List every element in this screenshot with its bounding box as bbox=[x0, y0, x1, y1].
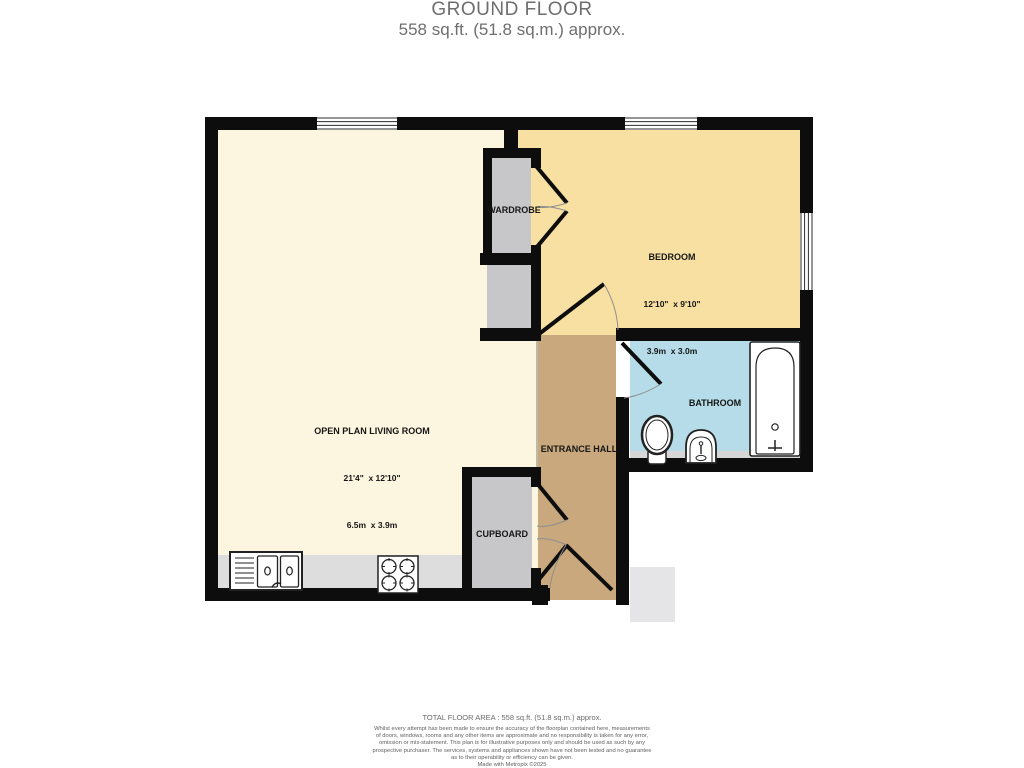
total-floor-area: TOTAL FLOOR AREA : 558 sq.ft. (51.8 sq.m… bbox=[0, 713, 1024, 722]
living-room-name: OPEN PLAN LIVING ROOM bbox=[314, 426, 430, 437]
window-top-left bbox=[317, 117, 397, 130]
wall-storage-bottom bbox=[480, 328, 541, 341]
living-hall-boundary-line bbox=[536, 341, 538, 467]
metropix-credit: Made with Metropix ©2025 bbox=[0, 762, 1024, 768]
bedroom-dims-imperial: 12'10" x 9'10" bbox=[643, 299, 700, 310]
bedroom-dims-metric: 3.9m x 3.0m bbox=[643, 346, 700, 357]
floorplan-page: GROUND FLOOR 558 sq.ft. (51.8 sq.m.) app… bbox=[0, 0, 1024, 768]
entrance-hall-label: ENTRANCE HALL bbox=[541, 444, 618, 455]
living-room-label: OPEN PLAN LIVING ROOM 21'4" x 12'10" 6.5… bbox=[314, 390, 430, 566]
disclaimer: Whilst every attempt has been made to en… bbox=[0, 726, 1024, 768]
bedroom-label: BEDROOM 12'10" x 9'10" 3.9m x 3.0m bbox=[643, 216, 700, 392]
wall-wardrobe-stub-top bbox=[531, 148, 541, 168]
bathtub bbox=[750, 342, 800, 456]
kitchen-sink bbox=[230, 552, 302, 590]
floorplan-drawing bbox=[0, 0, 1024, 768]
wardrobe-label: WARDROBE bbox=[487, 205, 541, 216]
living-room-dims-metric: 6.5m x 3.9m bbox=[314, 520, 430, 531]
storage-recess-floor bbox=[487, 265, 531, 328]
window-bedroom-right bbox=[800, 213, 813, 290]
cupboard-label: CUPBOARD bbox=[476, 529, 528, 540]
outside-step bbox=[630, 567, 675, 622]
wall-left bbox=[205, 117, 218, 601]
disclaimer-line: prospective purchaser. The services, sys… bbox=[0, 748, 1024, 755]
bedroom-name: BEDROOM bbox=[643, 252, 700, 263]
disclaimer-line: as to their operability or efficiency ca… bbox=[0, 755, 1024, 762]
floors bbox=[218, 130, 803, 622]
wall-cupboard-left bbox=[462, 467, 472, 598]
wall-right bbox=[800, 117, 813, 472]
wall-hall-right bbox=[616, 397, 629, 605]
wall-storage-right bbox=[531, 253, 541, 341]
entrance-hall-floor bbox=[538, 335, 616, 600]
disclaimer-line: Whilst every attempt has been made to en… bbox=[0, 726, 1024, 733]
disclaimer-line: omission or mis-statement. This plan is … bbox=[0, 740, 1024, 747]
washbasin bbox=[686, 430, 716, 463]
disclaimer-line: of doors, windows, rooms and any other i… bbox=[0, 733, 1024, 740]
wall-cupboard-top bbox=[462, 467, 541, 477]
window-top-right bbox=[625, 117, 697, 130]
living-room-dims-imperial: 21'4" x 12'10" bbox=[314, 473, 430, 484]
bathroom-label: BATHROOM bbox=[689, 398, 741, 409]
